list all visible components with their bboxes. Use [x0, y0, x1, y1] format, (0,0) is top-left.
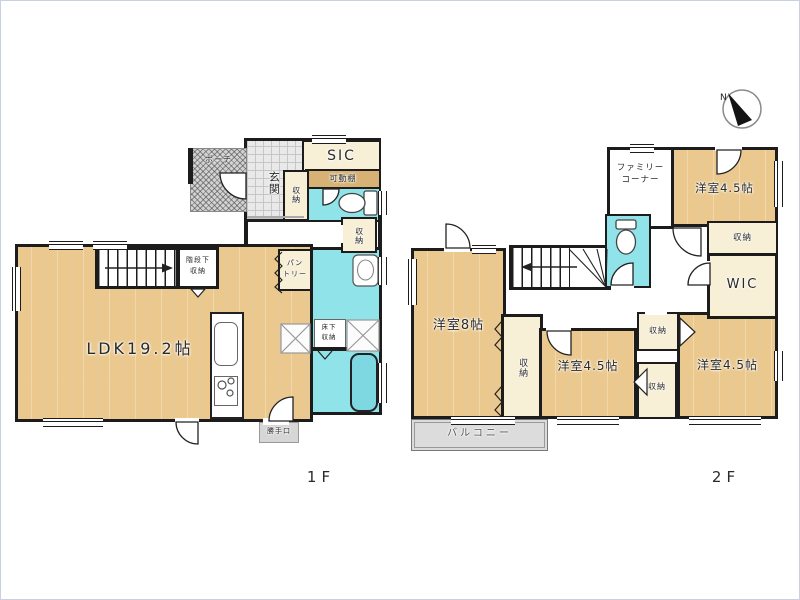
label-shuno-right-upper: 収納 — [639, 324, 677, 338]
label-yoshitsu-45-top: 洋室4.5帖 — [671, 181, 778, 197]
label-shuno-right-lower: 収納 — [638, 380, 676, 394]
window — [557, 416, 619, 425]
label-balcony: バルコニー — [421, 425, 538, 443]
label-pantry-2: トリー — [281, 269, 309, 280]
label-genkan: 玄関 — [265, 161, 281, 205]
label-kaidanshita-2: 収納 — [180, 266, 216, 277]
door-opening — [645, 309, 667, 315]
wall-bath-divider — [310, 347, 382, 351]
window — [630, 144, 654, 153]
window — [689, 416, 761, 425]
window — [408, 259, 417, 305]
window — [472, 245, 496, 254]
label-wic: WIC — [707, 276, 778, 294]
label-floor-2f: 2F — [696, 467, 756, 489]
door-opening — [611, 284, 634, 290]
door-opening — [444, 245, 470, 252]
window — [378, 363, 387, 403]
label-yukashita-1: 床下 — [315, 323, 343, 333]
genkan-step-line — [247, 216, 304, 218]
label-shuno-genkan: 収納 — [287, 176, 305, 214]
label-yukashita-2: 収納 — [315, 333, 343, 343]
label-yoshitsu-8: 洋室8帖 — [411, 317, 506, 335]
window-balcony-slider — [451, 416, 515, 425]
label-yoshitsu-45-bottom: 洋室4.5帖 — [677, 357, 778, 374]
compass-n-label: N — [720, 93, 727, 103]
label-family-1: ファミリー — [609, 163, 672, 175]
window — [43, 418, 103, 427]
kitchen-stove — [214, 376, 238, 406]
window — [93, 241, 127, 250]
label-porch: ポーチ — [192, 154, 245, 166]
label-floor-1f: 1F — [291, 467, 351, 489]
label-family-2: コーナー — [609, 175, 672, 187]
bathtub — [350, 353, 378, 412]
label-pantry-1: パン — [281, 258, 309, 269]
door-opening — [715, 144, 742, 151]
window — [378, 191, 387, 215]
label-shuno-top-right: 収納 — [709, 231, 776, 246]
door-opening — [338, 225, 343, 243]
stairs-1f — [95, 247, 179, 289]
window — [49, 241, 83, 250]
label-shuno-center: 収納 — [511, 351, 533, 385]
label-sic: SIC — [304, 142, 379, 170]
door-opening — [546, 325, 571, 332]
stairs-2f-treads — [512, 248, 570, 287]
label-kaidanshita-1: 階段下 — [180, 255, 216, 266]
window — [12, 267, 21, 311]
door-opening — [175, 418, 199, 425]
label-ldk: LDK19.2帖 — [35, 339, 245, 359]
label-kadoudana: 可動棚 — [307, 172, 379, 186]
window — [378, 257, 387, 285]
compass-icon: N — [720, 90, 761, 128]
door-opening — [263, 418, 289, 425]
room-toilet-2f — [605, 214, 651, 288]
wall-segment — [378, 215, 382, 249]
floorplan: ポーチ 玄関 SIC 可動棚 収納 収納 パン トリー 階段下 収納 LDK19… — [0, 0, 800, 600]
label-katteguchi: 勝手口 — [259, 425, 299, 437]
label-yoshitsu-45-center: 洋室4.5帖 — [539, 358, 637, 375]
wall-segment — [244, 219, 248, 247]
label-shuno-hall: 収納 — [351, 222, 367, 250]
